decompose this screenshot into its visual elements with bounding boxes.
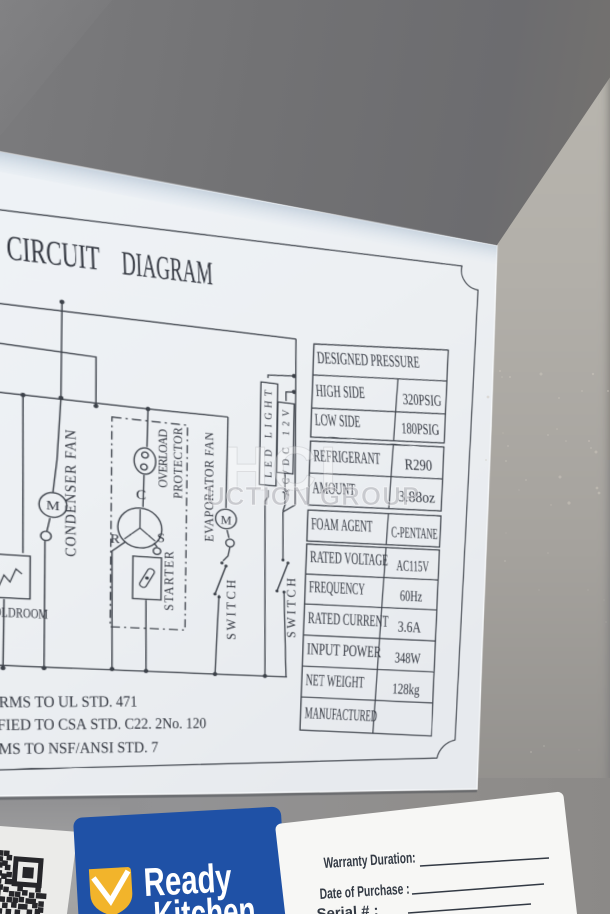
svg-text:UCTION GROUP: UCTION GROUP (206, 481, 420, 511)
